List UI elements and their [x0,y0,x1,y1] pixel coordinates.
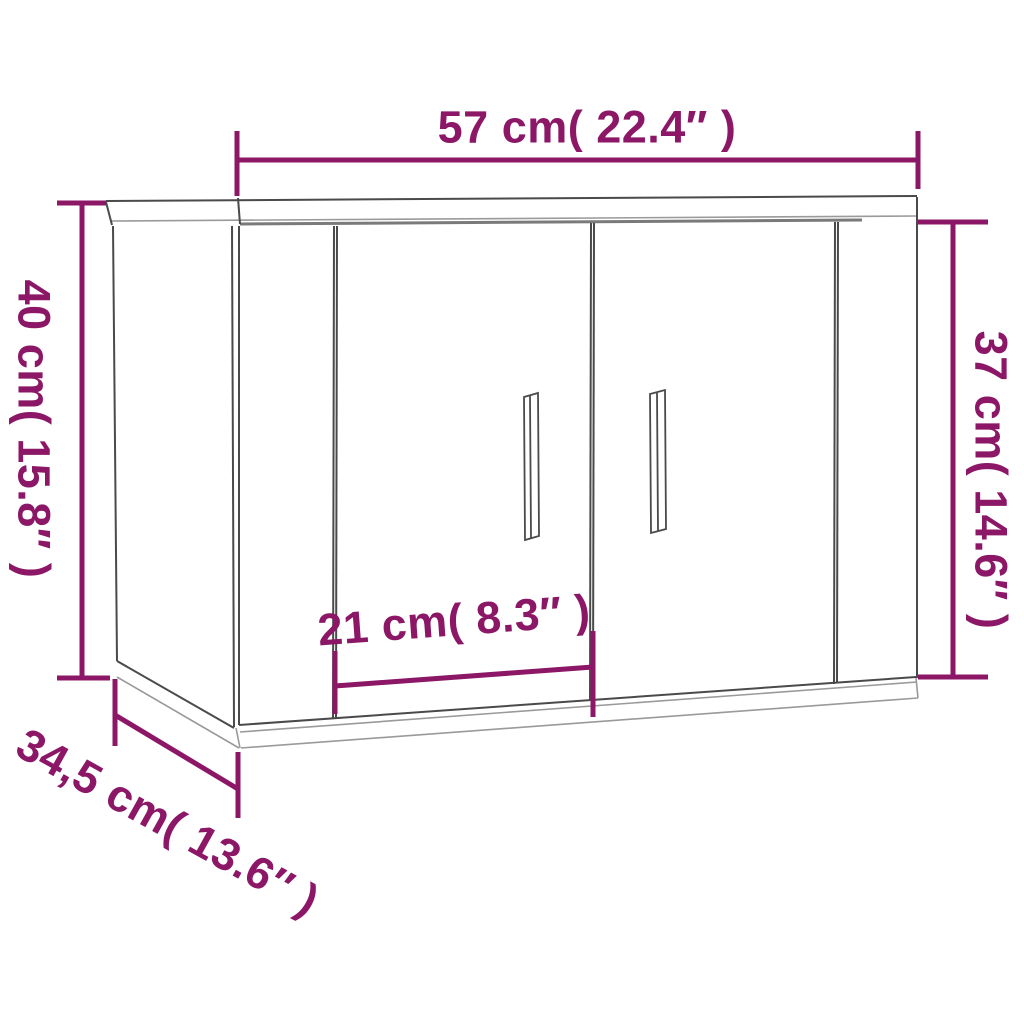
door-top-edge [240,220,862,224]
right-door-handle-edge [657,393,658,531]
dim-door-width-line [335,667,593,686]
dim-height-right-label: 37 cm( 14.6″ ) [966,331,1017,630]
dim-height-left-lines [57,203,110,678]
cabinet-lines-dark [106,196,917,728]
cabinet-handles [524,390,666,540]
dim-door-width-label: 21 cm( 8.3″ ) [316,585,592,656]
left-door-handle-edge [530,396,531,538]
bottom-right-corner-edge [916,678,918,698]
top-outer-edge [106,196,917,201]
dimension-labels: 57 cm( 22.4″ ) 40 cm( 15.8″ ) 37 cm( 14.… [8,102,1016,927]
dimension-diagram: 57 cm( 22.4″ ) 40 cm( 15.8″ ) 37 cm( 14.… [0,0,1024,1024]
dim-width-label: 57 cm( 22.4″ ) [438,102,737,153]
side-panel-left-edge [113,226,117,661]
front-left-edge-outer [232,226,234,727]
cabinet-lines-mid [240,220,862,224]
top-band-left-edge [106,202,112,225]
right-door-right-edge-outer [837,222,838,683]
dimension-annotations [57,131,988,818]
bottom-panel-front-edge [241,698,918,748]
bottom-left-corner-edge [236,728,240,748]
right-door-right-edge-inner [834,222,835,684]
bottom-panel-left-edge [117,677,239,748]
diagram-page: 57 cm( 22.4″ ) 40 cm( 15.8″ ) 37 cm( 14.… [0,0,1024,1024]
dim-height-left-label: 40 cm( 15.8″ ) [9,280,60,579]
door-gap-right-line [593,223,594,700]
front-bottom-inner-edge [240,682,917,732]
side-panel-bottom-edge [117,661,234,728]
